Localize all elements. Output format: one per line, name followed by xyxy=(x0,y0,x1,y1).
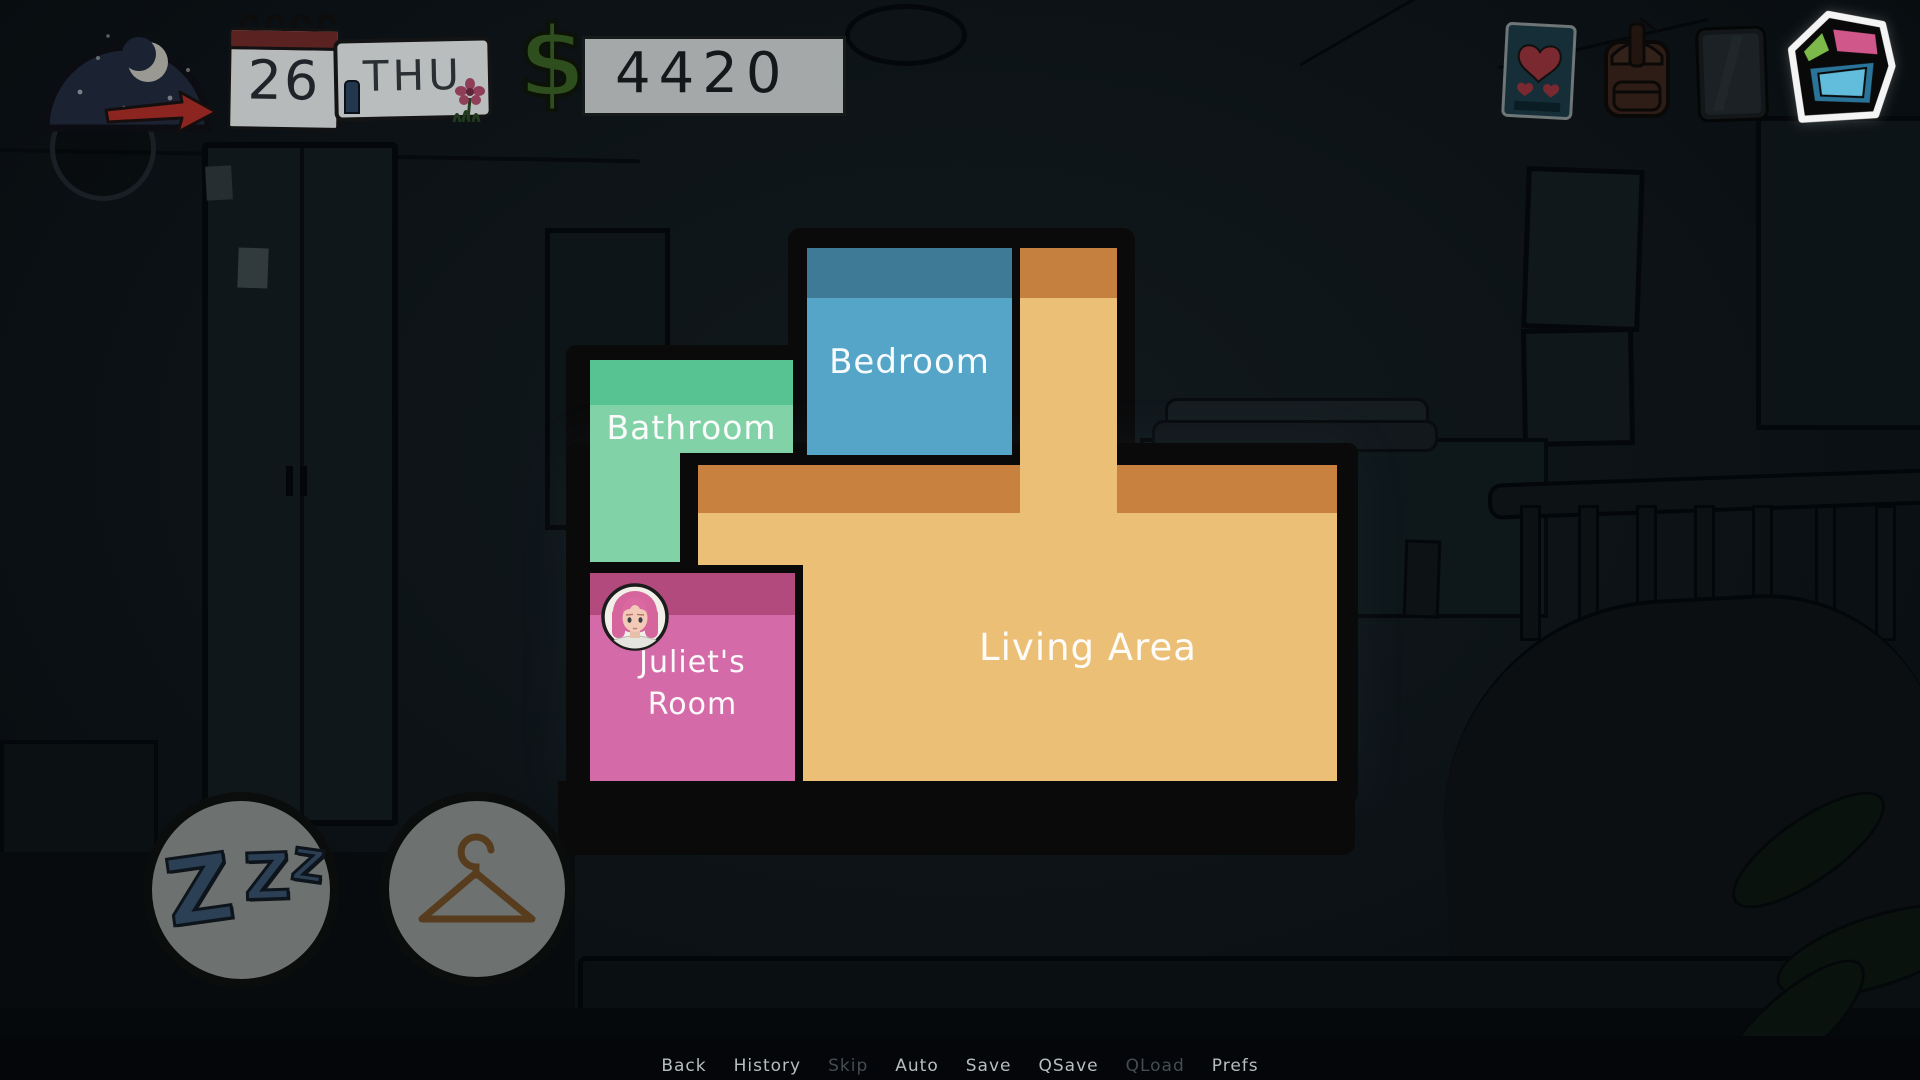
money-amount: 4420 xyxy=(585,39,843,109)
quick-menu: Back History Skip Auto Save QSave QLoad … xyxy=(0,1056,1920,1076)
inventory-bar xyxy=(1496,6,1916,130)
room-living-header xyxy=(1117,465,1337,513)
sleep-button[interactable]: Z Z Z xyxy=(143,792,339,988)
headboard-slat xyxy=(1875,505,1896,641)
phone-button[interactable] xyxy=(1692,23,1771,126)
quickmenu-qload: QLoad xyxy=(1126,1056,1185,1076)
wardrobe-button[interactable] xyxy=(380,792,574,986)
phone-on-dresser xyxy=(1403,539,1442,618)
quickmenu-prefs[interactable]: Prefs xyxy=(1212,1056,1259,1076)
quickmenu-history[interactable]: History xyxy=(734,1056,801,1076)
hanger-icon xyxy=(406,823,546,943)
juliets-room-label: Juliet's Room xyxy=(627,642,758,726)
calendar-day: 26 xyxy=(230,48,337,113)
time-of-day-indicator xyxy=(36,10,220,152)
wardrobe-handle xyxy=(300,466,307,496)
moon-night-icon xyxy=(36,10,220,152)
wall-panel xyxy=(1756,116,1920,430)
room-bathroom[interactable] xyxy=(590,453,680,562)
love-letter-button[interactable] xyxy=(1499,20,1578,122)
headboard-slat xyxy=(1520,505,1541,641)
room-living[interactable] xyxy=(803,565,1337,781)
ceiling-lamp xyxy=(845,4,967,66)
money-display: 4420 xyxy=(582,36,846,116)
sticky-note xyxy=(237,247,268,288)
phone-icon xyxy=(1692,23,1771,126)
wardrobe-handle xyxy=(286,466,293,496)
quickmenu-qsave[interactable]: QSave xyxy=(1038,1056,1098,1076)
hallway xyxy=(1020,298,1117,513)
flower-icon xyxy=(448,78,494,124)
wall-poster xyxy=(1521,166,1645,332)
juliet-avatar xyxy=(600,582,670,652)
zzz-icon: Z xyxy=(289,839,328,894)
room-living[interactable] xyxy=(698,513,1337,565)
calendar-card: 26 xyxy=(227,27,341,131)
map-button[interactable] xyxy=(1772,4,1902,126)
quickmenu-skip: Skip xyxy=(828,1056,868,1076)
sticky-note xyxy=(205,165,233,200)
hallway-header xyxy=(1020,248,1117,298)
room-bathroom-header xyxy=(590,360,793,405)
map-frame-base xyxy=(558,781,1355,855)
zzz-icon: Z xyxy=(159,833,240,948)
hanging-string xyxy=(1299,0,1430,66)
living-area-label: Living Area xyxy=(968,626,1208,669)
quickmenu-back[interactable]: Back xyxy=(661,1056,706,1076)
bedroom-label: Bedroom xyxy=(807,342,1012,382)
small-bottle xyxy=(344,80,360,114)
floorplan-cube-icon xyxy=(1772,4,1902,126)
juliet-portrait-icon xyxy=(600,582,670,652)
quickmenu-auto[interactable]: Auto xyxy=(895,1056,938,1076)
heart-card-icon xyxy=(1499,20,1578,122)
bathroom-label: Bathroom xyxy=(590,408,793,447)
wardrobe xyxy=(202,142,398,826)
money-dollar-icon: $ xyxy=(518,6,586,120)
room-bedroom-header xyxy=(807,248,1012,298)
wall-poster xyxy=(1521,327,1635,447)
quickmenu-save[interactable]: Save xyxy=(966,1056,1012,1076)
room-living-header xyxy=(698,465,1020,513)
game-screen: 26 THU $ 4420 xyxy=(0,0,1920,1080)
zzz-icon: Z xyxy=(243,840,292,916)
backpack-button[interactable] xyxy=(1598,16,1678,122)
backpack-icon xyxy=(1598,16,1678,122)
